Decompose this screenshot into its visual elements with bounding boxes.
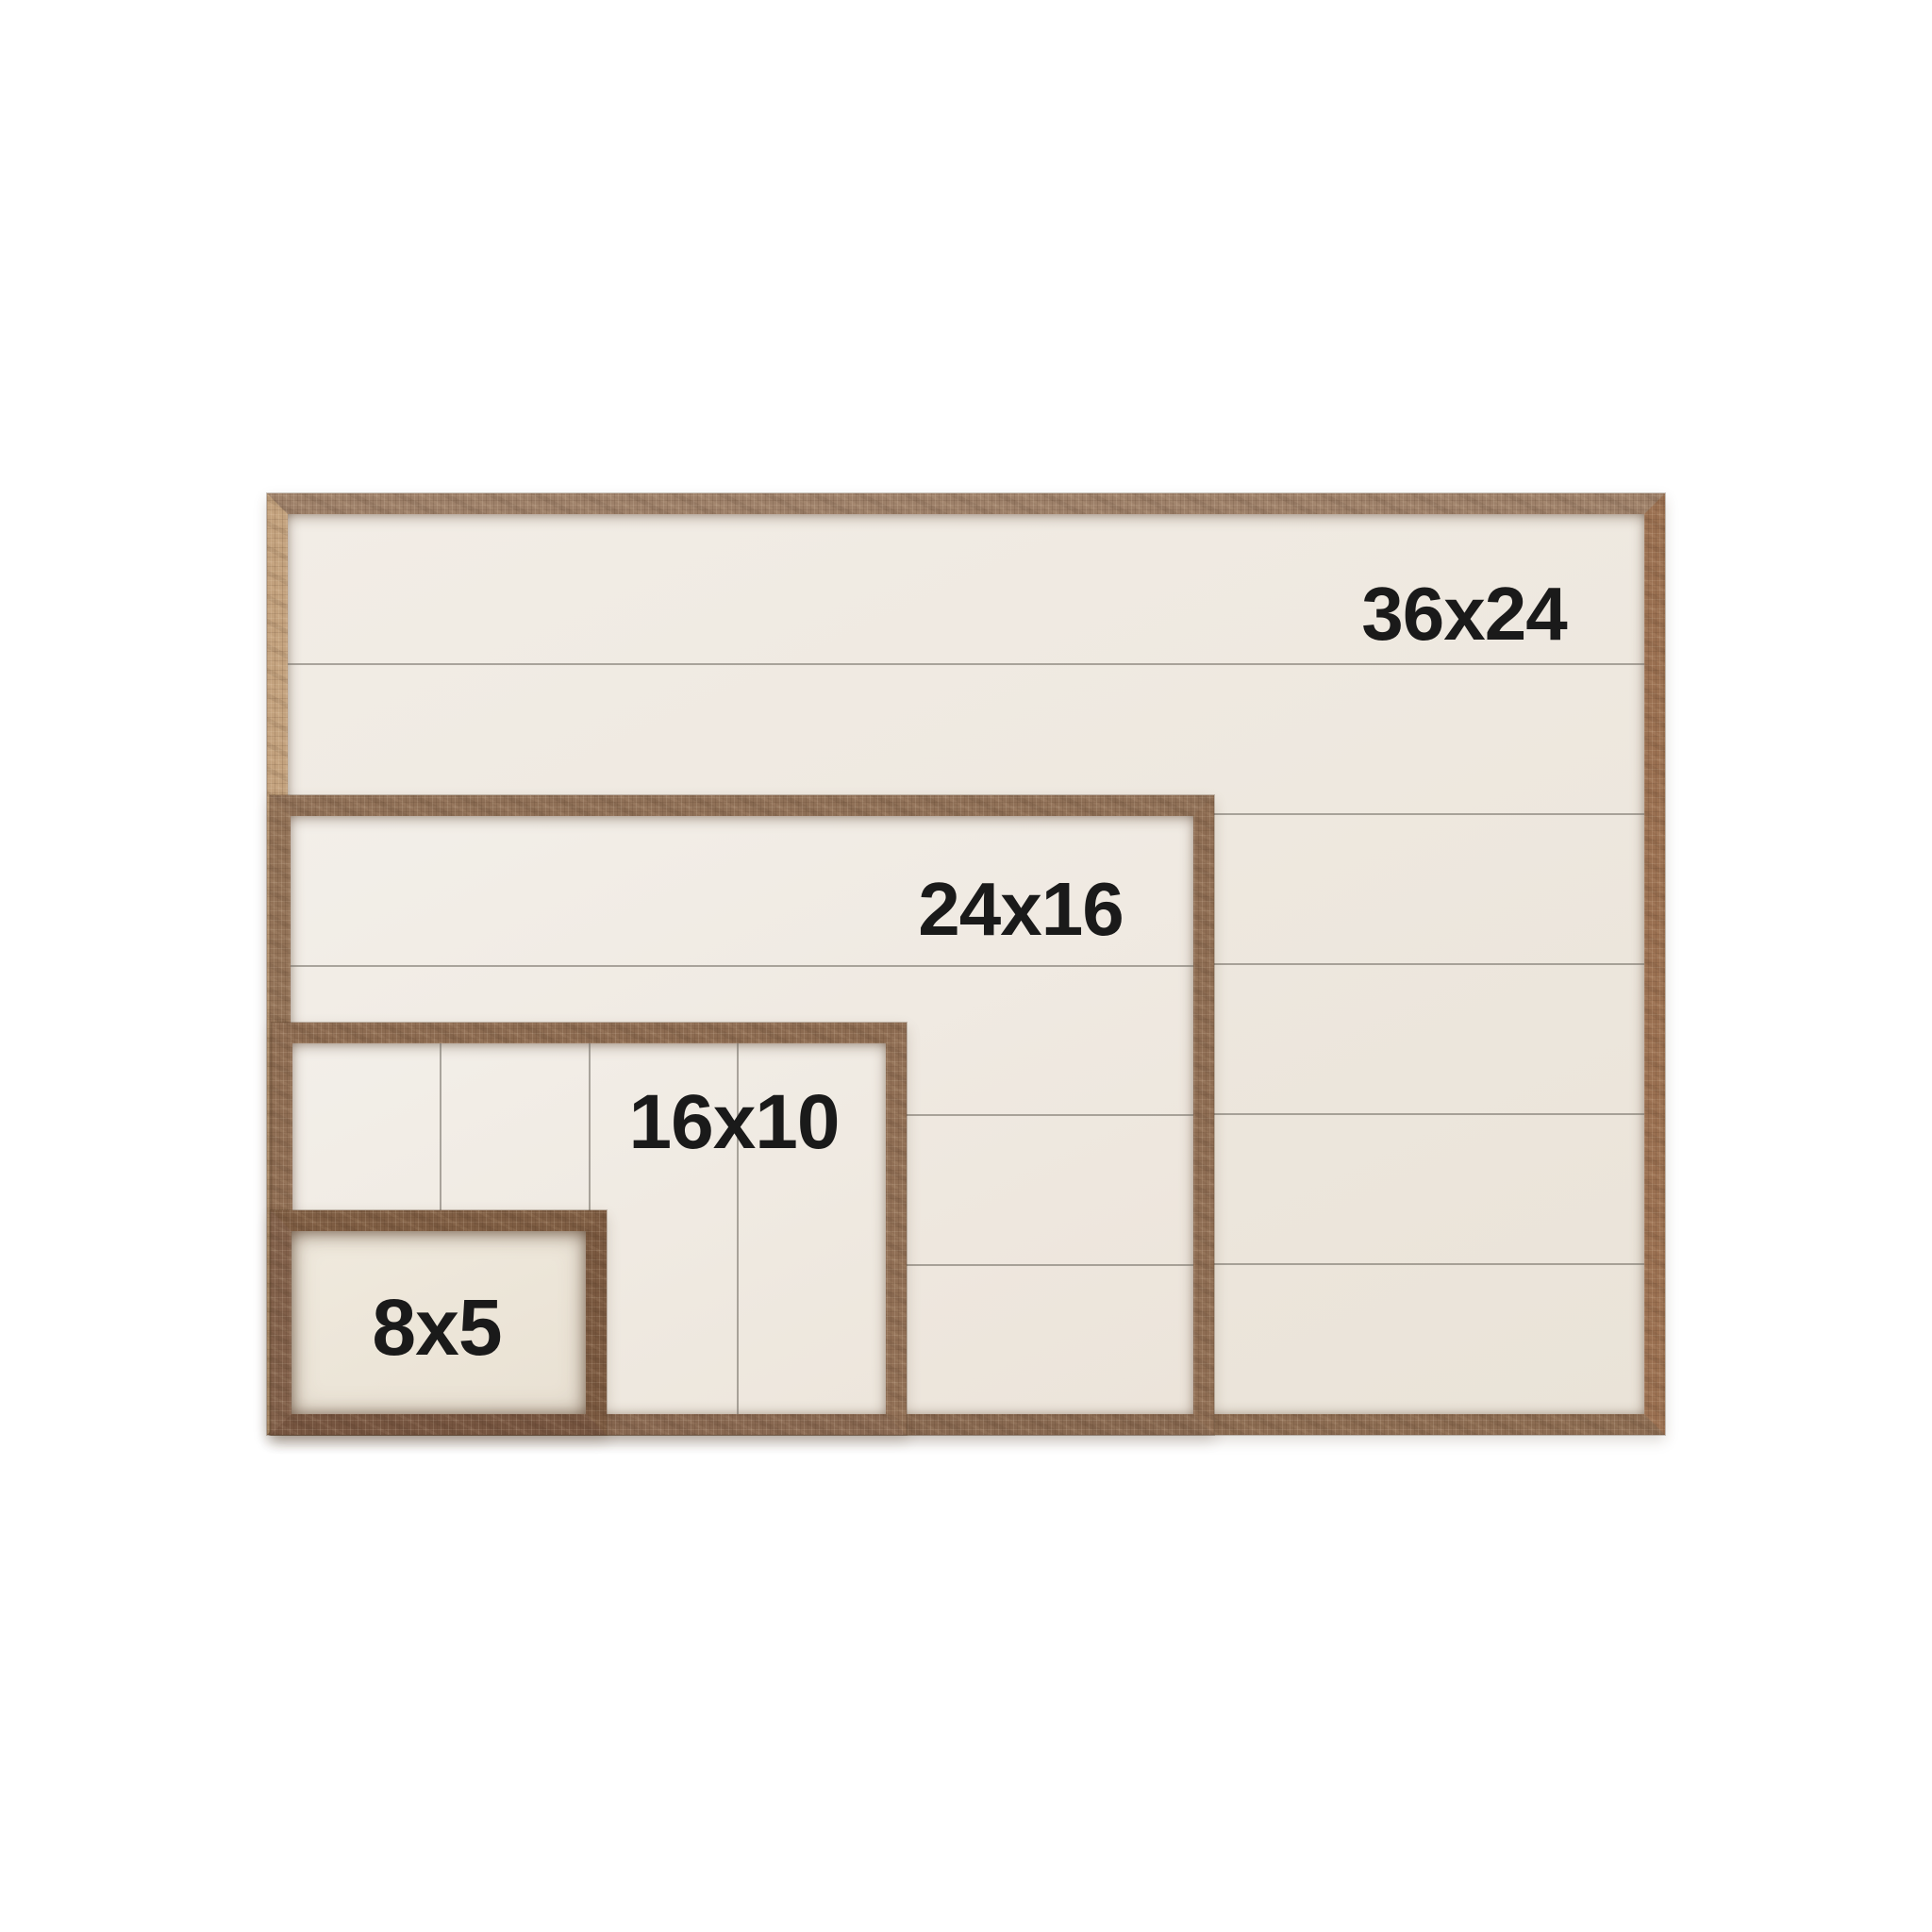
size-label-36x24: 36x24 <box>1361 576 1566 652</box>
shiplap-seam <box>291 965 1193 967</box>
shiplap-seam <box>288 663 1644 665</box>
size-label-24x16: 24x16 <box>918 872 1123 947</box>
size-label-8x5: 8x5 <box>372 1288 501 1367</box>
size-label-16x10: 16x10 <box>628 1084 839 1161</box>
frame-size-comparison-chart: 36x2424x1616x108x5 <box>0 0 1932 1932</box>
